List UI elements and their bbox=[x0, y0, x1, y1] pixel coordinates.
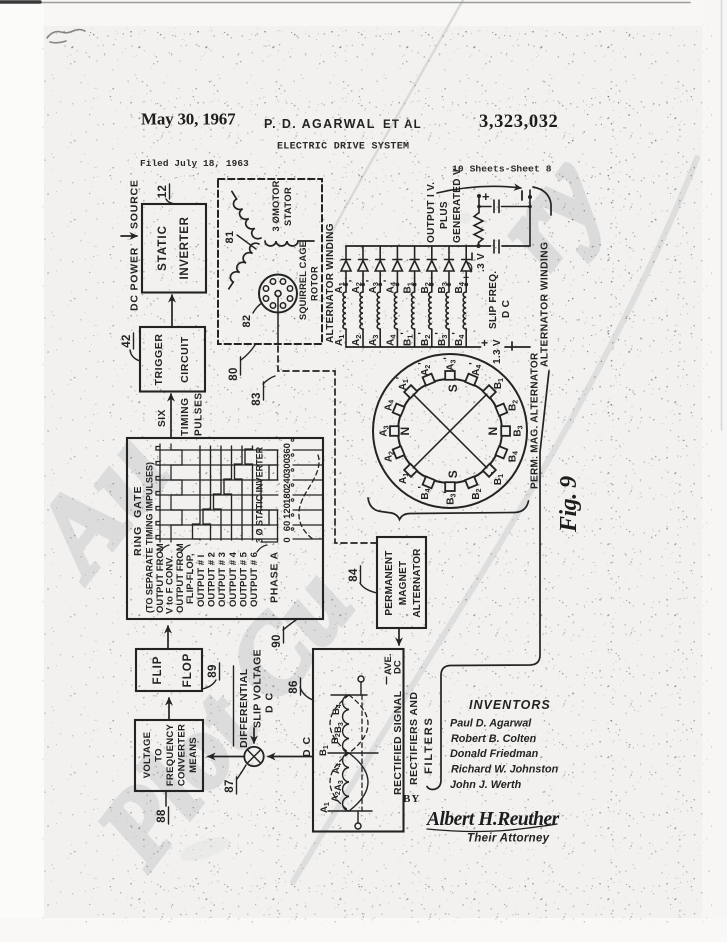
svg-text:89: 89 bbox=[207, 664, 219, 678]
svg-text:OUTPUT I V.: OUTPUT I V. bbox=[426, 182, 437, 243]
svg-text:S: S bbox=[446, 384, 460, 392]
svg-text:360: 360 bbox=[282, 443, 293, 459]
svg-text:N: N bbox=[486, 426, 500, 435]
svg-text:VOLTAGE: VOLTAGE bbox=[142, 732, 153, 779]
svg-text:Paul D. Agarwal: Paul D. Agarwal bbox=[450, 718, 532, 730]
svg-text:80: 80 bbox=[228, 367, 240, 381]
svg-text:Richard W. Johnston: Richard W. Johnston bbox=[451, 764, 559, 776]
svg-text:Their Attorney: Their Attorney bbox=[467, 833, 550, 845]
svg-text:3,323,032: 3,323,032 bbox=[479, 112, 558, 132]
svg-text:PERM. MAG. ALTERNATOR: PERM. MAG. ALTERNATOR bbox=[530, 352, 541, 489]
svg-text:ROTOR: ROTOR bbox=[310, 266, 320, 301]
svg-text:ELECTRIC DRIVE SYSTEM: ELECTRIC DRIVE SYSTEM bbox=[277, 142, 409, 153]
svg-text:CIRCUIT: CIRCUIT bbox=[179, 336, 191, 383]
svg-text:OUTPUT # 3: OUTPUT # 3 bbox=[217, 552, 228, 607]
svg-text:SQUIRREL CAGE: SQUIRREL CAGE bbox=[298, 241, 308, 320]
svg-text:D C: D C bbox=[501, 300, 512, 318]
svg-text:+: + bbox=[463, 272, 470, 284]
svg-text:Filed July 18, 1963: Filed July 18, 1963 bbox=[140, 158, 249, 169]
svg-text:TO: TO bbox=[154, 748, 165, 762]
svg-text:FREQUENCY: FREQUENCY bbox=[165, 723, 176, 786]
svg-text:300: 300 bbox=[282, 458, 293, 474]
svg-text:42: 42 bbox=[121, 334, 133, 348]
svg-text:PLUS: PLUS bbox=[439, 201, 450, 229]
svg-text:TRIGGER: TRIGGER bbox=[153, 333, 165, 385]
svg-text:V to F CONV.: V to F CONV. bbox=[165, 556, 176, 614]
svg-text:SLIP VOLTAGE: SLIP VOLTAGE bbox=[252, 649, 264, 728]
svg-text:May 30, 1967: May 30, 1967 bbox=[141, 110, 236, 129]
svg-text:Fig. 9: Fig. 9 bbox=[556, 476, 582, 533]
svg-text:OUTPUT # 6: OUTPUT # 6 bbox=[249, 552, 260, 607]
svg-text:PULSES: PULSES bbox=[194, 392, 205, 436]
svg-text:FLOP: FLOP bbox=[182, 653, 194, 688]
svg-text:RING GATE: RING GATE bbox=[132, 486, 144, 556]
svg-text:OUTPUT # I: OUTPUT # I bbox=[196, 555, 207, 607]
svg-text:180: 180 bbox=[282, 488, 293, 504]
svg-text:PERMANENT: PERMANENT bbox=[384, 550, 395, 615]
svg-text:BY: BY bbox=[403, 793, 420, 805]
svg-text:Robert B. Colten: Robert B. Colten bbox=[451, 733, 537, 745]
svg-text:90: 90 bbox=[271, 634, 283, 648]
svg-text:PHASE A: PHASE A bbox=[269, 551, 281, 603]
svg-text:ALTERNATOR: ALTERNATOR bbox=[412, 548, 423, 618]
svg-text:82: 82 bbox=[241, 314, 253, 327]
svg-text:86: 86 bbox=[288, 680, 300, 694]
svg-text:GENERATED V.: GENERATED V. bbox=[452, 166, 463, 243]
svg-text:RECTIFIED SIGNAL: RECTIFIED SIGNAL bbox=[392, 690, 404, 795]
svg-text:+: + bbox=[481, 336, 488, 350]
svg-text:N: N bbox=[398, 426, 412, 435]
svg-text:INVERTER: INVERTER bbox=[179, 216, 191, 279]
svg-text:OUTPUT # 2: OUTPUT # 2 bbox=[207, 552, 218, 607]
svg-text:12: 12 bbox=[157, 185, 169, 199]
svg-text:240: 240 bbox=[282, 473, 293, 489]
svg-text:+: + bbox=[482, 189, 490, 204]
svg-text:83: 83 bbox=[251, 392, 263, 406]
svg-text:120: 120 bbox=[282, 503, 293, 519]
svg-text:88: 88 bbox=[156, 809, 168, 823]
svg-text:87: 87 bbox=[224, 779, 236, 793]
svg-text:60: 60 bbox=[282, 521, 293, 532]
svg-text:MEANS: MEANS bbox=[188, 737, 199, 773]
svg-text:RECTIFIERS AND: RECTIFIERS AND bbox=[408, 692, 420, 785]
svg-text:OUTPUT # 5: OUTPUT # 5 bbox=[238, 551, 249, 607]
svg-text:DIFFERENTIAL: DIFFERENTIAL bbox=[238, 668, 250, 748]
svg-text:D C: D C bbox=[301, 736, 313, 757]
svg-text:FILTERS: FILTERS bbox=[423, 716, 435, 774]
svg-text:ALTERNATOR WINDING: ALTERNATOR WINDING bbox=[540, 241, 551, 367]
svg-text:FLIP: FLIP bbox=[152, 656, 164, 685]
svg-text:84: 84 bbox=[348, 568, 360, 582]
svg-text:STATIC: STATIC bbox=[157, 225, 169, 271]
svg-text:S: S bbox=[446, 470, 460, 478]
svg-text:1.3 V: 1.3 V bbox=[492, 339, 503, 364]
svg-text:D C: D C bbox=[264, 692, 276, 713]
svg-text:SOURCE: SOURCE bbox=[129, 179, 141, 229]
svg-text:STATOR: STATOR bbox=[283, 187, 293, 226]
svg-text:81: 81 bbox=[224, 230, 236, 243]
svg-text:John J. Werth: John J. Werth bbox=[450, 779, 522, 791]
svg-text:ET AL: ET AL bbox=[383, 119, 422, 131]
svg-text:3 ØMOTOR: 3 ØMOTOR bbox=[271, 180, 281, 231]
svg-text:0: 0 bbox=[282, 537, 293, 542]
svg-text:MAGNET: MAGNET bbox=[398, 561, 409, 606]
svg-text:10 Sheets-Sheet 8: 10 Sheets-Sheet 8 bbox=[452, 164, 552, 175]
svg-text:SIX: SIX bbox=[157, 409, 168, 427]
svg-text:INVENTORS: INVENTORS bbox=[469, 698, 551, 712]
svg-text:DC POWER: DC POWER bbox=[129, 247, 141, 311]
svg-text:.3 V: .3 V bbox=[476, 253, 487, 272]
svg-text:OUTPUT # 4: OUTPUT # 4 bbox=[228, 551, 239, 607]
svg-text:P. D. AGARWAL: P. D. AGARWAL bbox=[264, 117, 376, 131]
svg-text:TIMING: TIMING bbox=[180, 397, 191, 436]
svg-text:SLIP FREQ.: SLIP FREQ. bbox=[488, 271, 499, 329]
svg-text:(TO SEPARATE TIMING IMPULSES): (TO SEPARATE TIMING IMPULSES) bbox=[145, 462, 155, 613]
svg-text:Donald Friedman: Donald Friedman bbox=[450, 748, 539, 760]
svg-text:DC: DC bbox=[393, 660, 404, 674]
svg-text:FLIP-FLOP,: FLIP-FLOP, bbox=[185, 554, 196, 605]
svg-text:CONVERTER: CONVERTER bbox=[177, 724, 188, 786]
svg-text:ALTERNATOR WINDING: ALTERNATOR WINDING bbox=[325, 223, 336, 343]
